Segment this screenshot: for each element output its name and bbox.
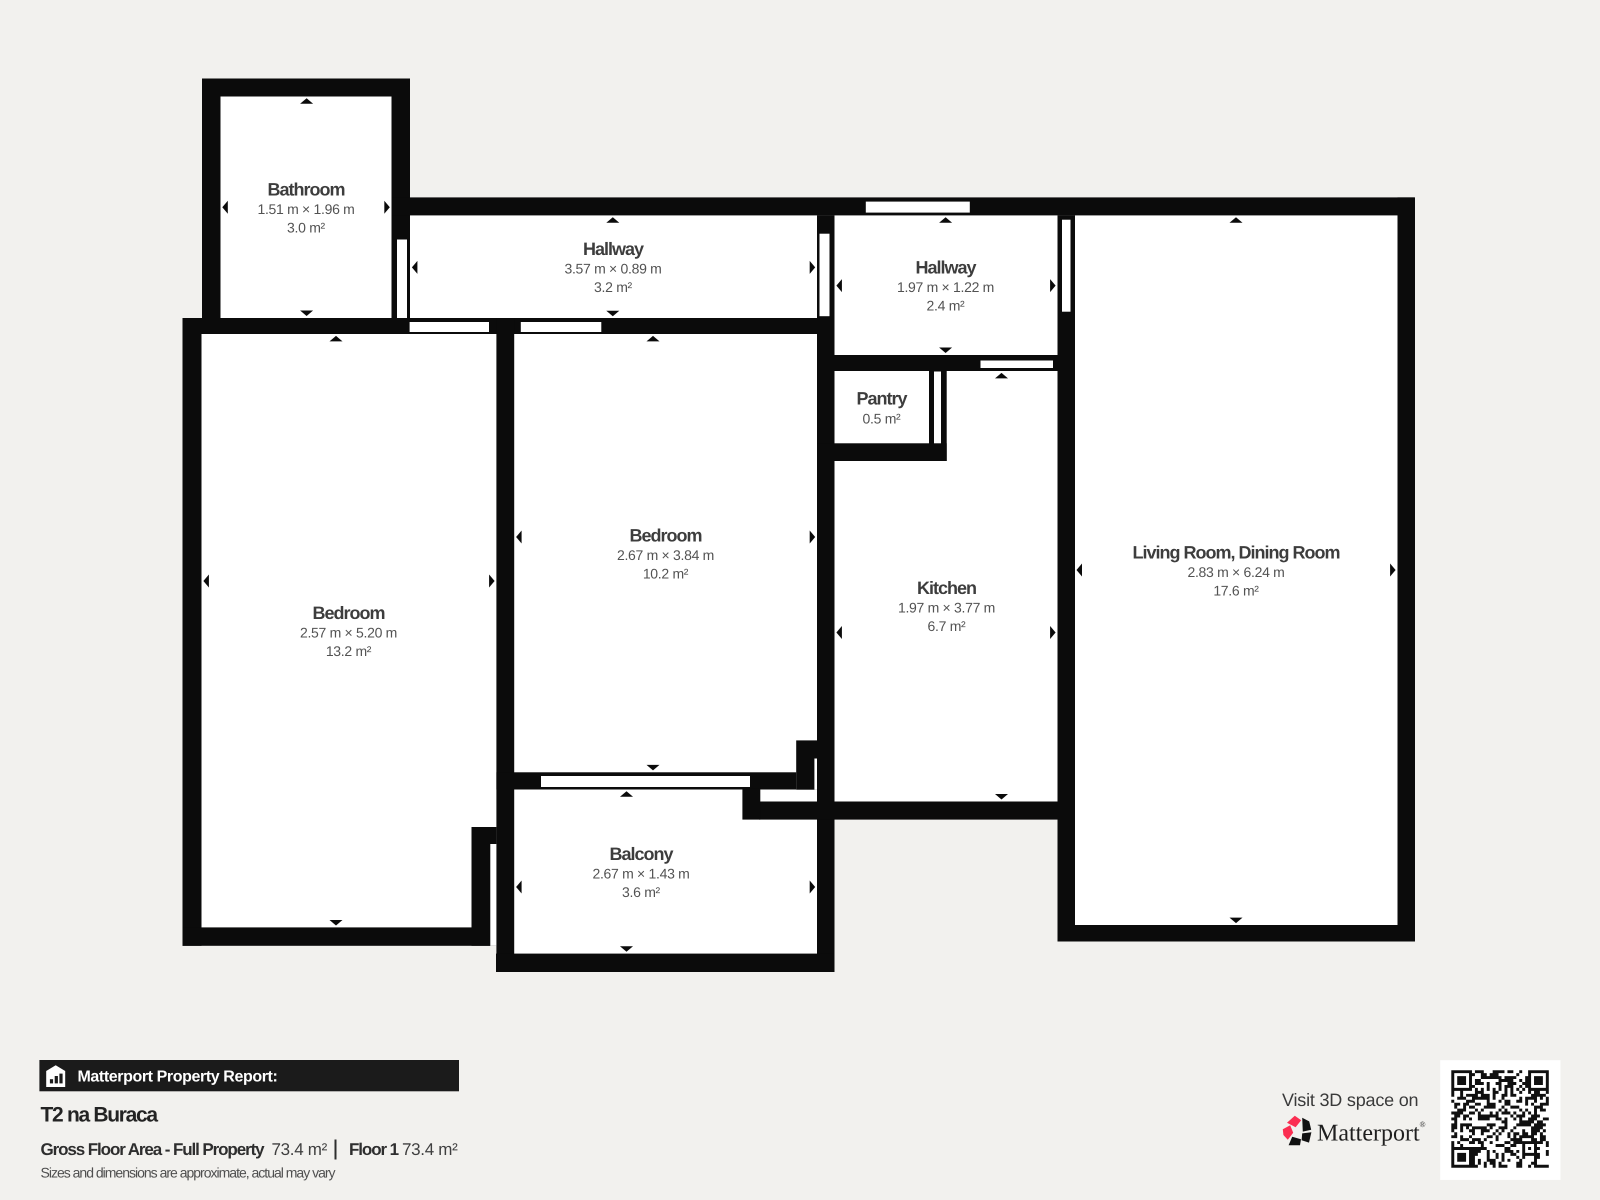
svg-text:2.57 m × 5.20 m: 2.57 m × 5.20 m xyxy=(300,625,397,641)
svg-text:Balcony: Balcony xyxy=(609,844,673,864)
svg-text:Living Room, Dining Room: Living Room, Dining Room xyxy=(1133,543,1340,563)
svg-text:6.7 m²: 6.7 m² xyxy=(928,618,967,634)
svg-text:3.2 m²: 3.2 m² xyxy=(594,279,633,295)
svg-text:Matterport: Matterport xyxy=(1317,1121,1420,1147)
svg-text:2.67 m × 3.84 m: 2.67 m × 3.84 m xyxy=(617,547,714,563)
svg-text:Sizes and dimensions are appro: Sizes and dimensions are approximate, ac… xyxy=(41,1165,336,1181)
svg-text:Floor 1: Floor 1 xyxy=(349,1140,399,1159)
svg-text:73.4 m²: 73.4 m² xyxy=(272,1140,328,1159)
svg-text:T2 na Buraca: T2 na Buraca xyxy=(41,1103,159,1126)
svg-text:13.2 m²: 13.2 m² xyxy=(326,643,372,659)
svg-text:0.5 m²: 0.5 m² xyxy=(863,411,902,427)
svg-text:1.97 m × 3.77 m: 1.97 m × 3.77 m xyxy=(898,599,995,615)
svg-text:Kitchen: Kitchen xyxy=(917,578,976,598)
svg-text:3.57 m × 0.89 m: 3.57 m × 0.89 m xyxy=(564,261,661,277)
svg-text:2.4 m²: 2.4 m² xyxy=(927,298,966,314)
svg-text:3.0 m²: 3.0 m² xyxy=(287,220,326,236)
svg-text:Visit 3D space on: Visit 3D space on xyxy=(1282,1090,1418,1110)
svg-text:17.6 m²: 17.6 m² xyxy=(1213,583,1259,599)
svg-text:Matterport Property Report:: Matterport Property Report: xyxy=(78,1069,278,1086)
svg-text:2.67 m × 1.43 m: 2.67 m × 1.43 m xyxy=(592,865,689,881)
svg-text:10.2 m²: 10.2 m² xyxy=(643,566,689,582)
svg-text:Bedroom: Bedroom xyxy=(629,526,701,546)
svg-text:®: ® xyxy=(1420,1120,1426,1129)
svg-text:Hallway: Hallway xyxy=(915,258,976,278)
svg-text:3.6 m²: 3.6 m² xyxy=(622,884,661,900)
svg-text:Gross Floor Area - Full Proper: Gross Floor Area - Full Property xyxy=(41,1140,266,1159)
svg-text:Pantry: Pantry xyxy=(856,388,907,408)
svg-text:Hallway: Hallway xyxy=(583,239,644,259)
svg-text:1.51 m × 1.96 m: 1.51 m × 1.96 m xyxy=(257,201,354,217)
svg-text:73.4 m²: 73.4 m² xyxy=(402,1140,458,1159)
svg-text:Bathroom: Bathroom xyxy=(268,180,345,200)
svg-text:Bedroom: Bedroom xyxy=(312,603,384,623)
svg-text:2.83 m × 6.24 m: 2.83 m × 6.24 m xyxy=(1187,564,1284,580)
svg-text:1.97 m × 1.22 m: 1.97 m × 1.22 m xyxy=(897,279,994,295)
